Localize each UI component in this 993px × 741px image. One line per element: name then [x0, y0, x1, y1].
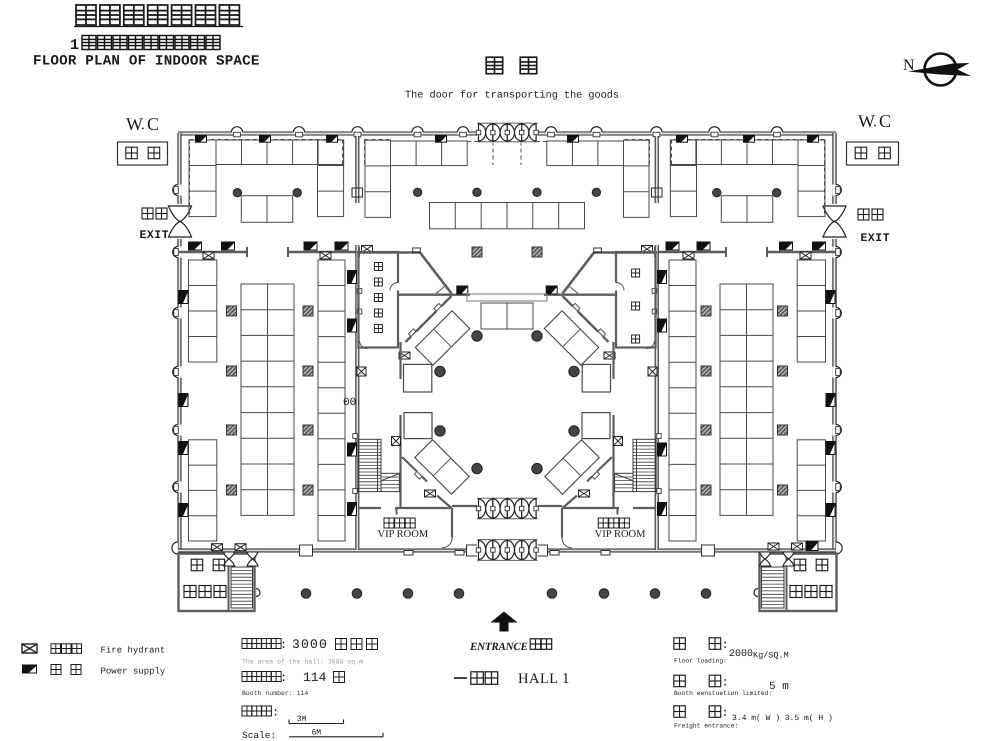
- svg-text:Fire hydrant: Fire hydrant: [100, 646, 165, 656]
- svg-text:HALL: HALL: [518, 671, 559, 687]
- svg-text::: :: [280, 638, 287, 652]
- svg-text:The area of the hall: 3000 sq: The area of the hall: 3000 sq.m: [242, 659, 363, 666]
- svg-text:Booth eenstuetion limited:: Booth eenstuetion limited:: [674, 690, 772, 697]
- svg-text:114: 114: [303, 670, 327, 685]
- svg-text:VIP ROOM: VIP ROOM: [595, 529, 646, 540]
- svg-text:.: .: [141, 117, 145, 133]
- svg-text:EXIT: EXIT: [860, 232, 890, 245]
- svg-text:Power supply: Power supply: [100, 667, 165, 677]
- svg-text::: :: [721, 706, 728, 720]
- svg-text:00: 00: [343, 397, 356, 409]
- svg-text:Freight entrance:: Freight entrance:: [674, 723, 738, 730]
- svg-text:N: N: [903, 57, 915, 74]
- svg-text:Scale:: Scale:: [242, 730, 276, 741]
- svg-text::: :: [272, 706, 279, 720]
- svg-text:1: 1: [562, 671, 570, 687]
- svg-text:ENTRANCE: ENTRANCE: [469, 641, 528, 653]
- svg-text:FLOOR PLAN OF INDOOR SPACE: FLOOR PLAN OF INDOOR SPACE: [33, 54, 260, 70]
- svg-text:C: C: [879, 111, 891, 131]
- svg-text:2000: 2000: [729, 649, 753, 660]
- svg-text:.: .: [873, 114, 877, 130]
- svg-text::: :: [721, 638, 728, 652]
- svg-text::: :: [280, 671, 287, 685]
- svg-text:VIP ROOM: VIP ROOM: [377, 529, 428, 540]
- svg-text:Kg/SQ.M: Kg/SQ.M: [753, 651, 789, 661]
- svg-text:Floor loading:: Floor loading:: [674, 658, 727, 665]
- svg-text:C: C: [147, 114, 159, 134]
- svg-text:Booth number: 114: Booth number: 114: [242, 690, 308, 697]
- svg-text:3.4 m( W ) 3.5 m( H ): 3.4 m( W ) 3.5 m( H ): [732, 714, 833, 723]
- svg-text::: :: [721, 676, 728, 690]
- svg-text:EXIT: EXIT: [139, 229, 169, 242]
- svg-text:3000: 3000: [292, 637, 328, 652]
- svg-text:1: 1: [70, 37, 79, 54]
- svg-text:3M: 3M: [297, 715, 307, 724]
- svg-text:The door for transporting the: The door for transporting the goods: [405, 90, 619, 102]
- svg-text:6M: 6M: [311, 729, 321, 738]
